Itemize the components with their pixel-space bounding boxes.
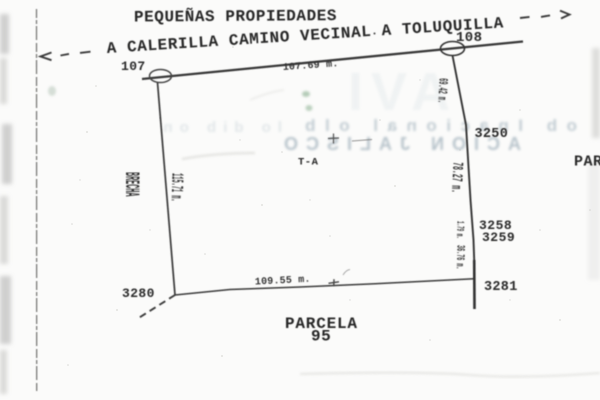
svg-text:1.79 m.: 1.79 m. <box>453 221 465 239</box>
svg-text:95: 95 <box>311 328 331 346</box>
svg-text:3250: 3250 <box>475 127 509 142</box>
svg-text:lo dib on: lo dib on <box>157 119 282 136</box>
svg-text:AVI: AVI <box>340 62 450 122</box>
svg-text:36.76 m.: 36.76 m. <box>453 245 467 270</box>
svg-text:78.27 m.: 78.27 m. <box>447 162 465 194</box>
svg-text:3281: 3281 <box>484 280 518 295</box>
svg-text:69.42 m.: 69.42 m. <box>434 78 450 104</box>
svg-text:108: 108 <box>456 30 482 46</box>
svg-text:3259: 3259 <box>482 230 515 245</box>
svg-text:PEQUEÑAS PROPIEDADES: PEQUEÑAS PROPIEDADES <box>134 5 337 26</box>
svg-text:PARC: PARC <box>574 154 600 171</box>
svg-text:T-A: T-A <box>298 157 319 169</box>
svg-text:BRECHA: BRECHA <box>119 172 140 196</box>
svg-text:3280: 3280 <box>122 286 155 301</box>
svg-text:ob Inacional olb: ob Inacional olb <box>296 116 577 135</box>
svg-text:115.71 m.: 115.71 m. <box>166 173 186 202</box>
svg-text:107: 107 <box>121 59 146 74</box>
